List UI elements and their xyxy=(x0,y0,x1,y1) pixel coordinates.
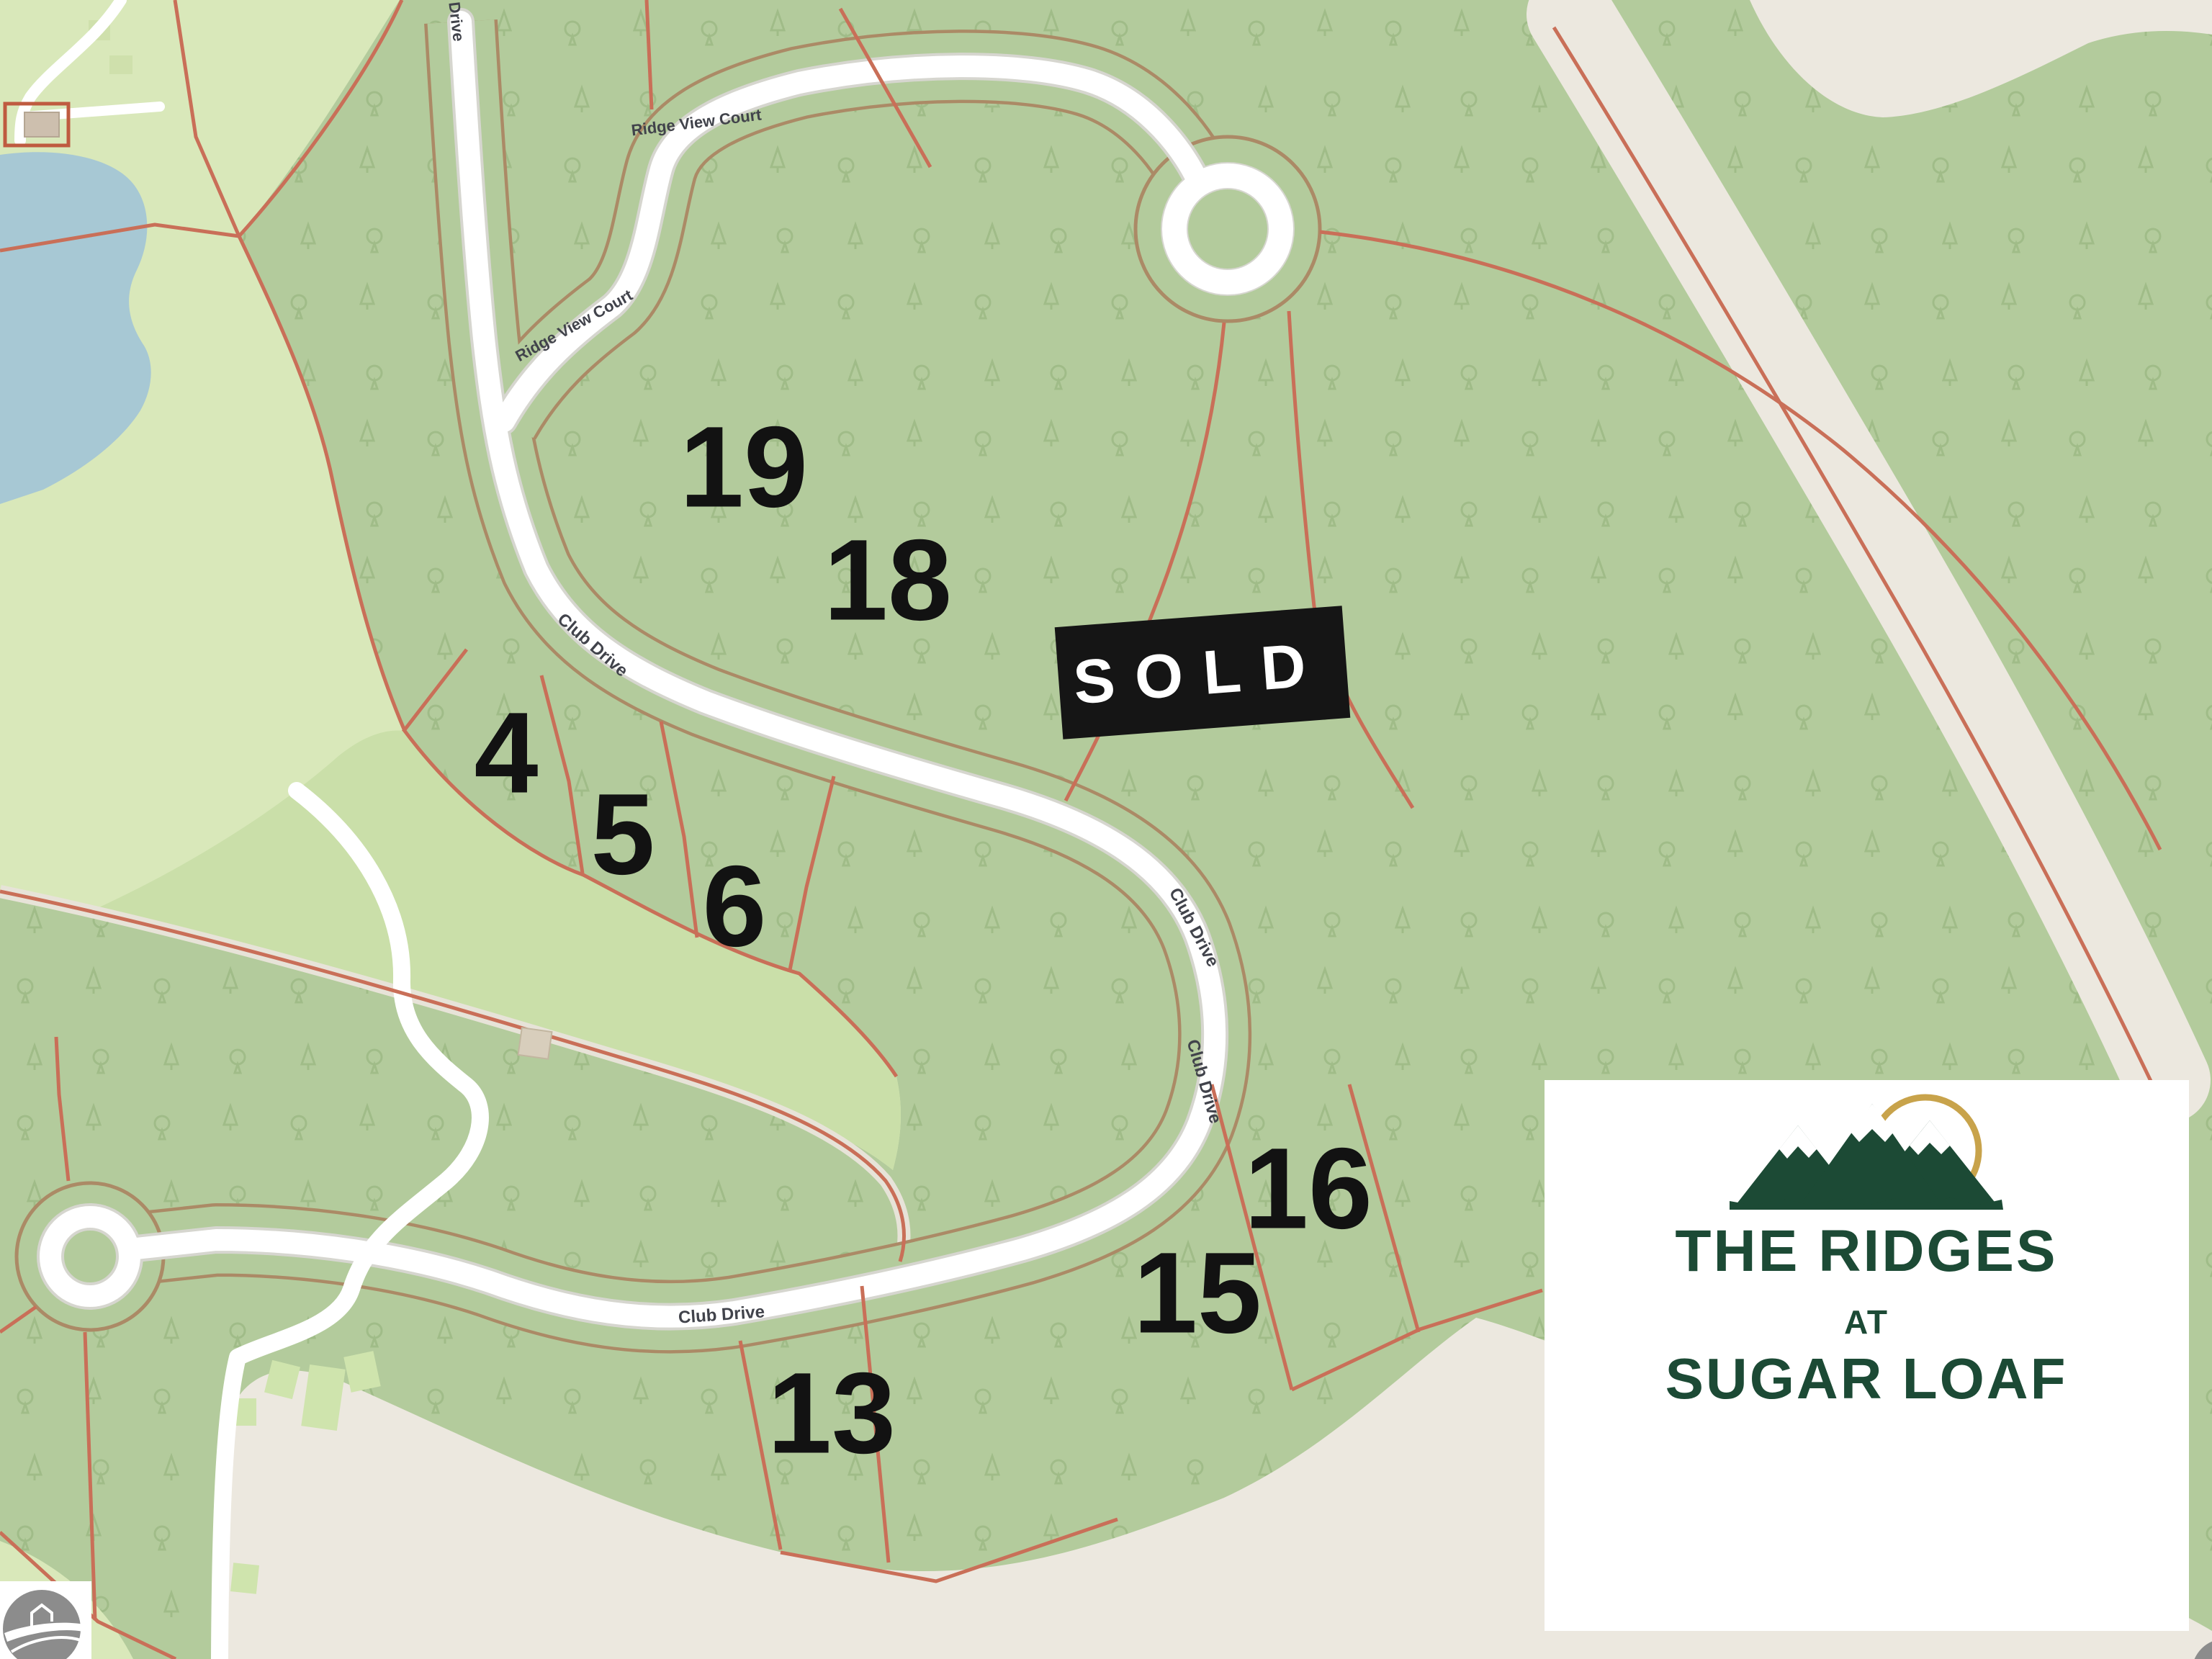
lot-number-6: 6 xyxy=(703,842,767,971)
plat-map-screenshot: Ridge View Court Ridge View Court Club D… xyxy=(0,0,2212,1659)
building-icon xyxy=(518,1028,552,1058)
watermark-bottom-left xyxy=(0,1581,91,1659)
sold-badge: SOLD xyxy=(1055,606,1351,739)
lot-number-15: 15 xyxy=(1133,1228,1262,1357)
logo-title-line1: THE RIDGES xyxy=(1675,1218,2057,1284)
logo-title-line3: SUGAR LOAF xyxy=(1665,1346,2068,1411)
lot-number-18: 18 xyxy=(824,516,952,644)
logo-title-line2: AT xyxy=(1844,1303,1889,1341)
lot-number-16: 16 xyxy=(1244,1124,1372,1253)
building-icon xyxy=(24,112,59,137)
lot-number-13: 13 xyxy=(768,1349,896,1478)
lot-number-19: 19 xyxy=(680,403,808,531)
lot-number-5: 5 xyxy=(591,770,655,899)
logo-card: THE RIDGES AT SUGAR LOAF xyxy=(1545,1080,2189,1631)
lot-number-4: 4 xyxy=(475,688,539,817)
map-canvas: Ridge View Court Ridge View Court Club D… xyxy=(0,0,2212,1659)
